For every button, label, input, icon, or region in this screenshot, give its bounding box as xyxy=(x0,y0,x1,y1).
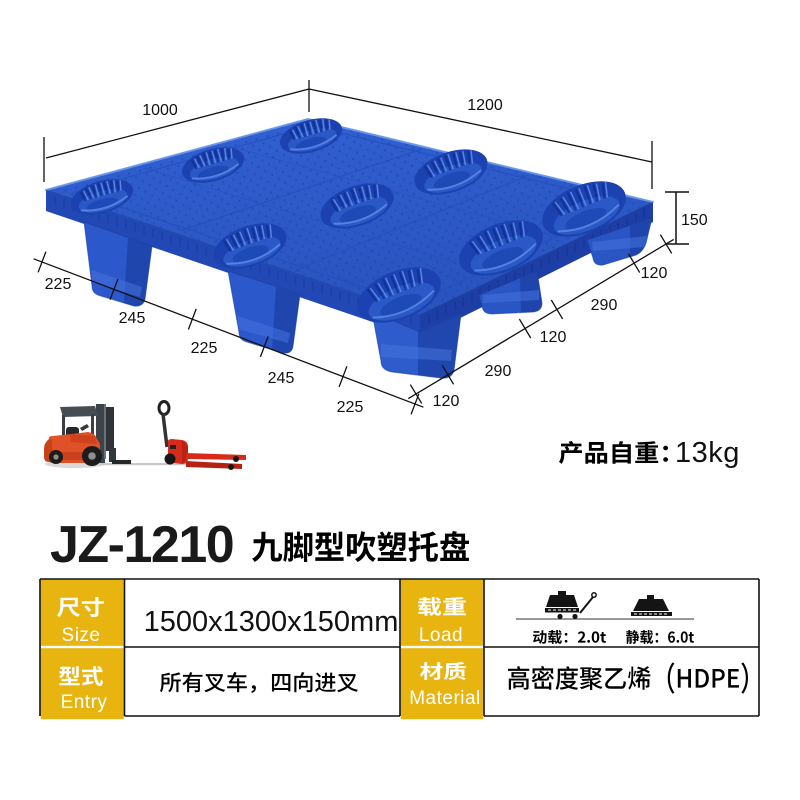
svg-text:225: 225 xyxy=(337,399,364,416)
svg-text:245: 245 xyxy=(119,310,146,327)
svg-text:Material: Material xyxy=(409,688,481,709)
svg-text:120: 120 xyxy=(540,329,567,346)
svg-text:1000: 1000 xyxy=(142,102,178,119)
svg-text:Load: Load xyxy=(419,625,463,646)
svg-text:290: 290 xyxy=(485,363,512,380)
svg-text:1500x1300x150mm: 1500x1300x150mm xyxy=(144,606,399,638)
svg-text:120: 120 xyxy=(433,393,460,410)
svg-text:245: 245 xyxy=(268,370,295,387)
svg-text:1200: 1200 xyxy=(467,97,503,114)
svg-text:Size: Size xyxy=(62,625,101,646)
svg-text:150: 150 xyxy=(681,212,708,229)
svg-text:120: 120 xyxy=(641,265,668,282)
svg-text:290: 290 xyxy=(591,297,618,314)
svg-text:225: 225 xyxy=(191,340,218,357)
svg-text:Entry: Entry xyxy=(61,692,108,713)
svg-text:13kg: 13kg xyxy=(675,437,740,469)
svg-text:JZ-1210: JZ-1210 xyxy=(50,516,233,574)
svg-text:225: 225 xyxy=(45,276,72,293)
